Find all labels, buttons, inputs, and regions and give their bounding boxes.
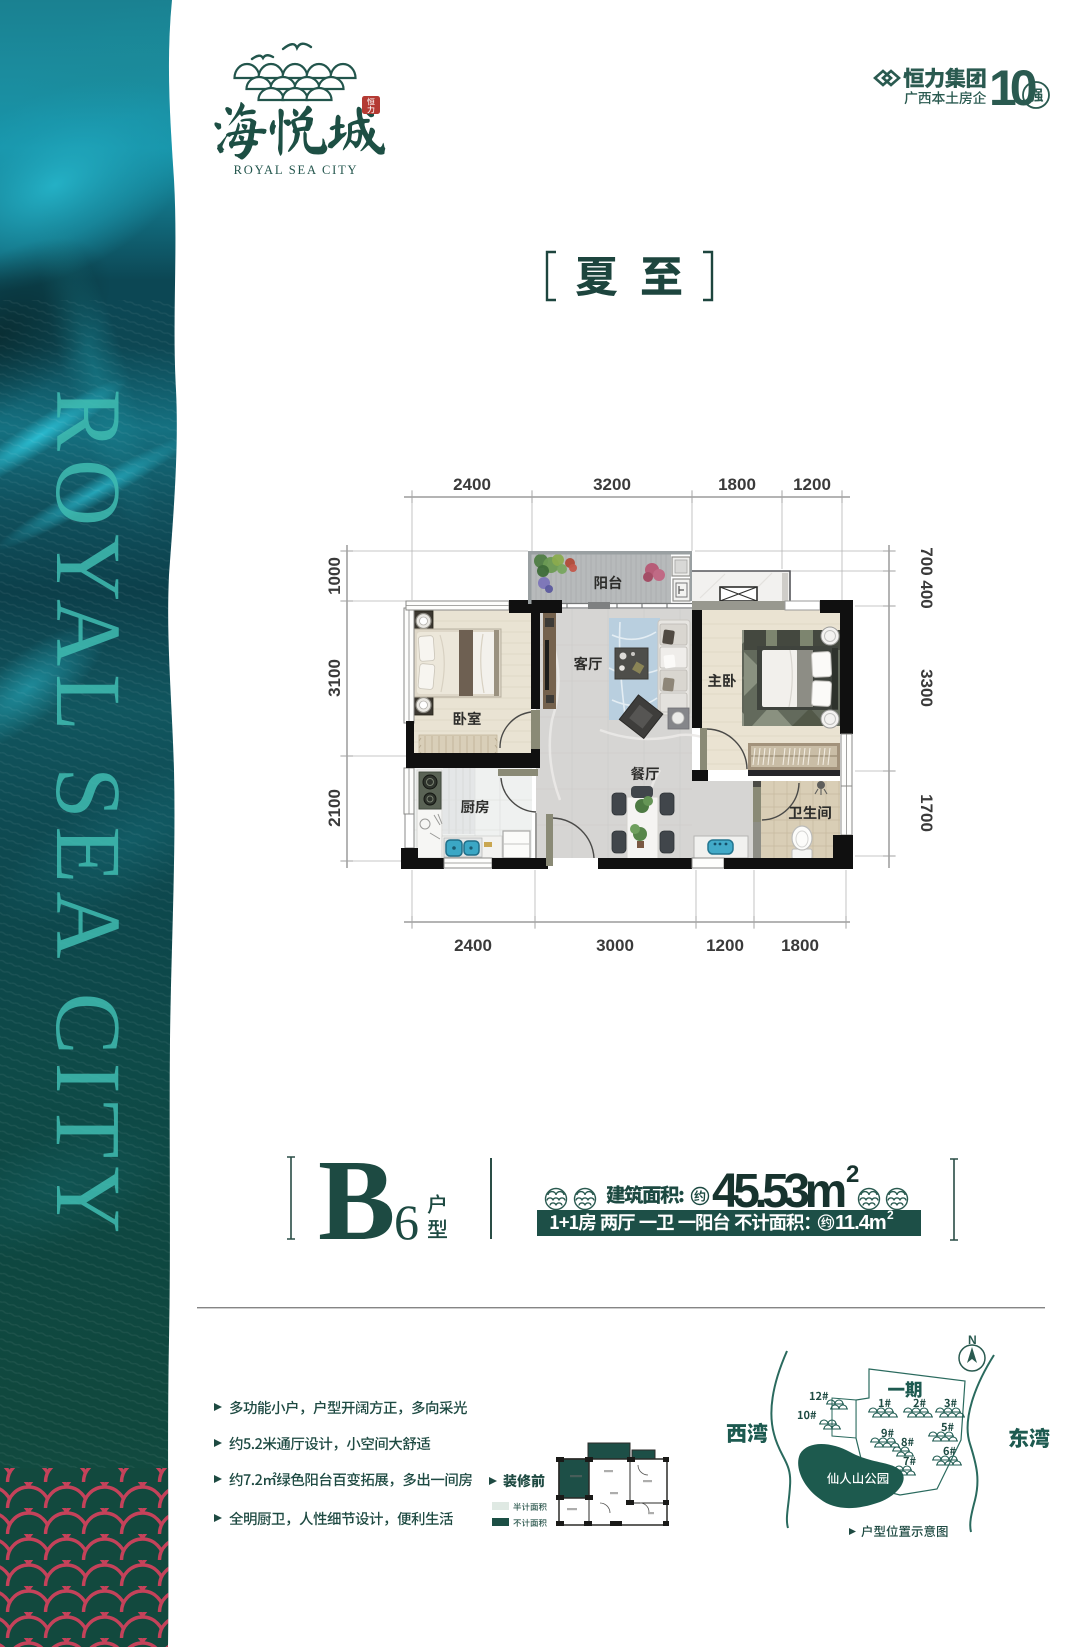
svg-text:N: N [968, 1333, 977, 1347]
svg-text:B: B [318, 1137, 395, 1265]
svg-text:3300: 3300 [917, 669, 936, 707]
svg-text:1800: 1800 [781, 936, 819, 955]
svg-text:ROYAL SEA CITY: ROYAL SEA CITY [36, 389, 139, 1242]
svg-text:2: 2 [846, 1161, 859, 1188]
svg-text:11.4m: 11.4m [835, 1212, 886, 1234]
svg-text:3000: 3000 [596, 936, 634, 955]
svg-text:700 400: 700 400 [917, 547, 936, 608]
svg-text:2: 2 [887, 1208, 894, 1222]
svg-text:6: 6 [394, 1194, 419, 1250]
svg-text:1800: 1800 [718, 475, 756, 494]
svg-text:10: 10 [989, 60, 1036, 116]
svg-text:ROYAL SEA CITY: ROYAL SEA CITY [234, 163, 359, 177]
svg-text:3100: 3100 [325, 659, 344, 697]
svg-text:2100: 2100 [325, 789, 344, 827]
svg-text:1700: 1700 [917, 794, 936, 832]
svg-text:3200: 3200 [593, 475, 631, 494]
svg-text:2400: 2400 [453, 475, 491, 494]
svg-text:1200: 1200 [706, 936, 744, 955]
svg-text:2400: 2400 [454, 936, 492, 955]
svg-text:1200: 1200 [793, 475, 831, 494]
svg-text:1000: 1000 [325, 557, 344, 595]
